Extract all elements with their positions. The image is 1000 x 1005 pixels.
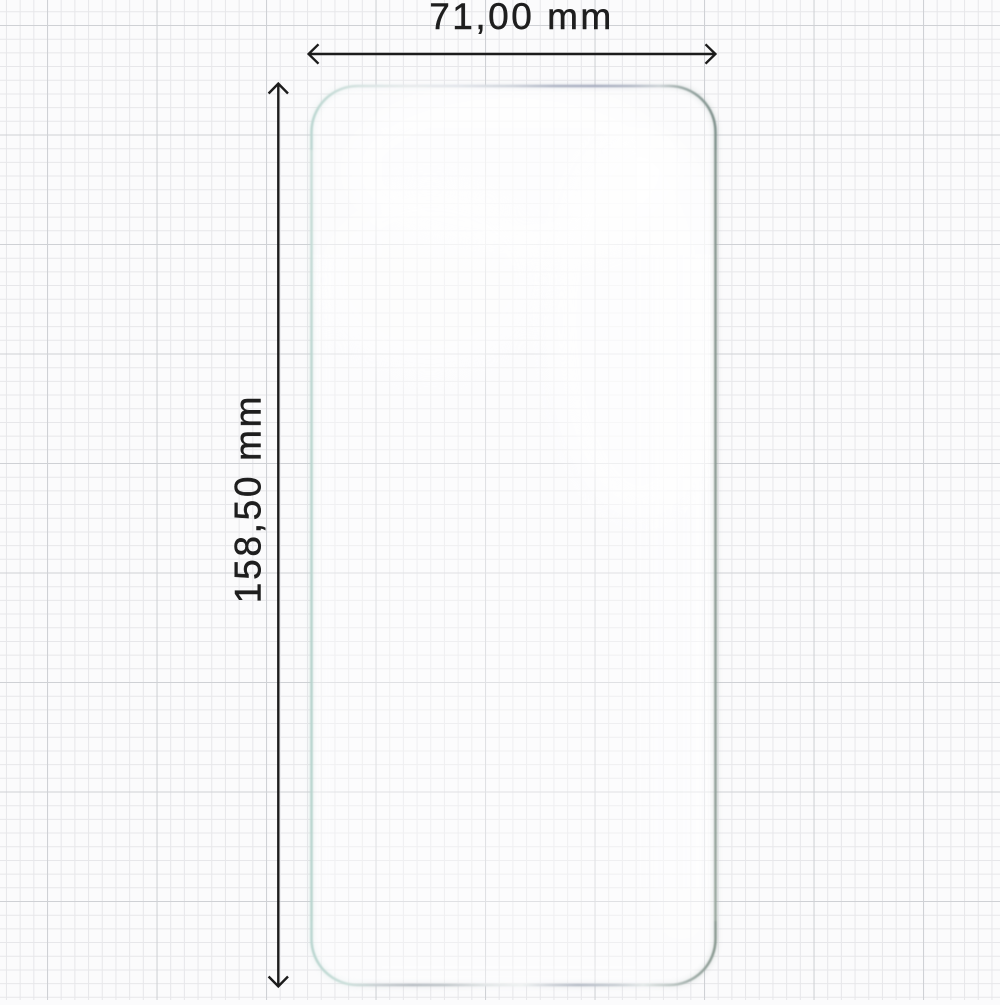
svg-text:158,50 mm: 158,50 mm [228,394,269,603]
svg-text:71,00 mm: 71,00 mm [429,0,614,37]
